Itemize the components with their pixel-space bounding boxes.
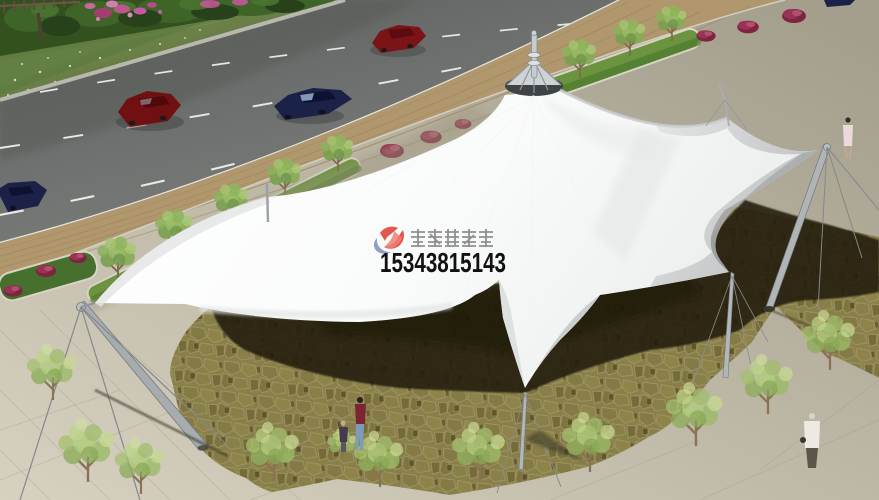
svg-text:15343815143: 15343815143 [380,247,506,278]
